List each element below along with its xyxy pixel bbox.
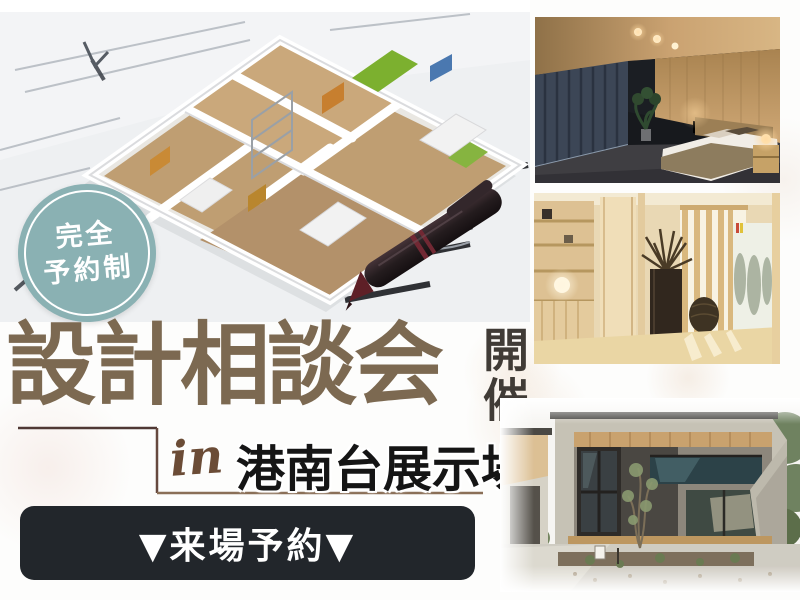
location-script-in: in xyxy=(168,432,224,484)
location-venue: 港南台展示場 xyxy=(236,430,530,501)
bedroom-illustration xyxy=(535,17,780,183)
photo-bedroom xyxy=(535,17,780,183)
photo-entryway xyxy=(534,193,780,364)
photo-house-exterior xyxy=(500,398,800,592)
yard-sign xyxy=(595,546,605,559)
badge-line2: 予約制 xyxy=(42,249,135,292)
house-illustration xyxy=(500,398,800,592)
floorplan-blueprint-photo: 完全 予約制 xyxy=(0,0,530,322)
event-title: 設計相談会 xyxy=(6,318,478,413)
house-body xyxy=(550,412,787,550)
basket-vase xyxy=(689,297,719,333)
badge-line1: 完全 xyxy=(54,215,117,255)
visit-reservation-button[interactable]: ▼来場予約▼ xyxy=(20,506,475,580)
entryway-illustration xyxy=(534,193,780,364)
event-banner: 完全 予約制 設計相談会 開催 in 港南台展示場 ▼来場予約▼ xyxy=(0,0,800,600)
